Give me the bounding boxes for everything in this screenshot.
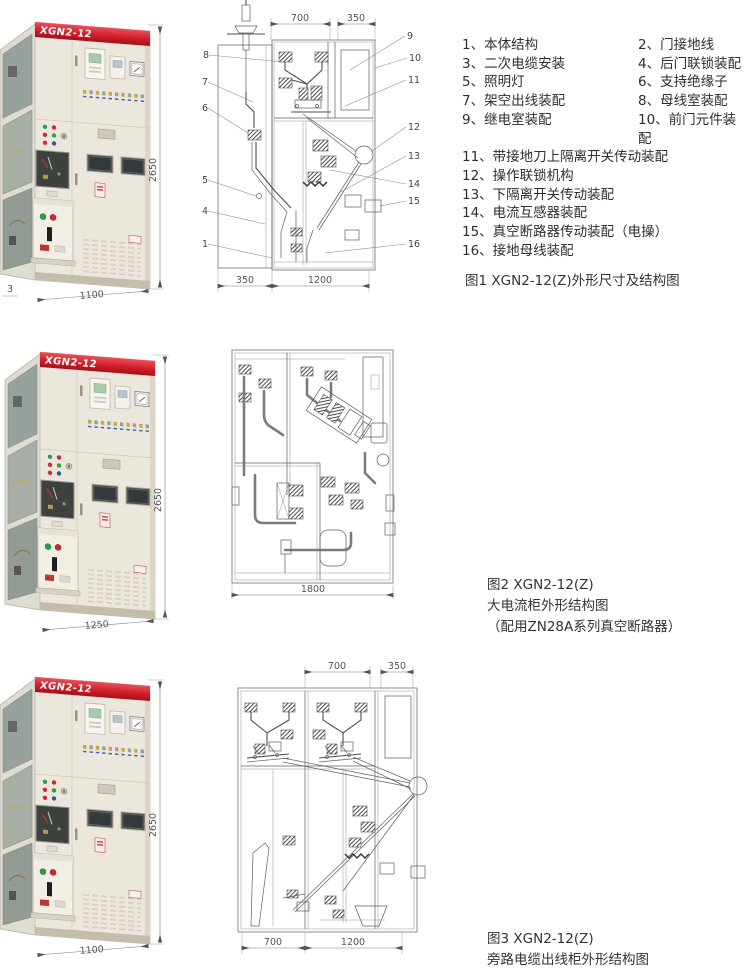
svg-text:12: 12 (408, 122, 420, 133)
dim-350b: 350 (236, 275, 254, 286)
door-handle (75, 173, 78, 185)
svg-text:1: 1 (202, 239, 208, 250)
busbar-bay-1 (245, 703, 295, 762)
part-item: 10、前门元件装配 (638, 111, 746, 148)
width-dim-label: 1100 (79, 289, 104, 302)
ct-and-mechanism (251, 806, 425, 926)
side-panel (0, 679, 35, 935)
busbar-room (279, 52, 331, 112)
dim-350: 350 (388, 661, 406, 672)
drawing-fig2: 1800 (225, 345, 405, 607)
mechanism-box (31, 198, 75, 266)
rear-cable-path (246, 92, 291, 258)
width-dimension: 1250 (43, 619, 153, 632)
top-dimensions: 700 350 (271, 13, 375, 40)
open-button (50, 214, 56, 220)
svg-text:9: 9 (407, 31, 413, 42)
caption-line: 图2 XGN2-12(Z) (487, 575, 681, 596)
overhead-bushing (227, 0, 265, 92)
door-handle (75, 55, 78, 66)
dim-700: 700 (328, 661, 346, 672)
part-item: 14、电流互感器装配 (462, 204, 746, 223)
inspection-window (41, 480, 74, 519)
width-dim-label: 1250 (84, 619, 109, 632)
close-button (40, 868, 46, 874)
height-dim-label: 2650 (153, 488, 164, 512)
inspection-window (36, 150, 69, 189)
svg-text:16: 16 (408, 239, 420, 250)
bottom-dimensions: 700 1200 (242, 932, 402, 954)
part-item: 15、真空断路器传动装配（电操） (462, 223, 746, 242)
busbar-bay-2 (313, 703, 367, 762)
open-button (50, 869, 56, 875)
cable-runs (239, 365, 375, 550)
width-dim-label: 1100 (79, 944, 104, 957)
operating-linkage (283, 757, 427, 912)
front-panel: XGN2-12 (31, 22, 150, 289)
width-dimension: 1100 (38, 944, 148, 957)
part-item: 11、带接地刀上隔离开关传动装配 (462, 148, 746, 167)
caption-line: 大电流柜外形结构图 (487, 596, 681, 617)
mechanism-box (36, 528, 80, 596)
svg-text:4: 4 (202, 206, 208, 217)
svg-text:10: 10 (409, 53, 421, 64)
dim-700: 700 (291, 13, 309, 24)
dim-1800: 1800 (301, 584, 325, 595)
caption-fig2: 图2 XGN2-12(Z) 大电流柜外形结构图 （配用ZN28A系列真空断路器） (487, 575, 681, 638)
part-item: 6、支持绝缘子 (638, 73, 746, 92)
part-item: 5、照明灯 (462, 73, 638, 92)
cabinet-outline (232, 350, 395, 583)
bottom-dimensions: 350 1200 (218, 268, 369, 292)
ct-compartment (274, 140, 381, 262)
svg-text:14: 14 (408, 179, 420, 190)
side-callout-label: 3 (7, 284, 13, 295)
vacuum-breaker-assembly (306, 387, 373, 444)
svg-text:5: 5 (202, 175, 208, 186)
door-handle (80, 385, 83, 396)
side-panel (0, 24, 35, 280)
door-handle (75, 710, 78, 721)
svg-text:7: 7 (202, 77, 208, 88)
height-dim-label: 2650 (148, 813, 159, 837)
cabinet-outline (238, 688, 417, 932)
side-panel (5, 354, 40, 610)
dim-1200: 1200 (308, 275, 332, 286)
inspection-window (36, 805, 69, 844)
part-item: 2、门接地线 (638, 36, 746, 55)
close-button (40, 213, 46, 219)
part-item: 16、接地母线装配 (462, 242, 746, 261)
part-item: 13、下隔离开关传动装配 (462, 186, 746, 205)
part-item: 8、母线室装配 (638, 92, 746, 111)
part-item: 3、二次电缆安装 (462, 55, 638, 74)
part-item: 9、继电室装配 (462, 111, 638, 148)
bottom-dimension: 1800 (232, 584, 393, 599)
drawing-fig1: 700 350 350 1200 8 7 6 5 4 1 9 10 11 12 … (195, 0, 470, 300)
svg-text:13: 13 (408, 151, 420, 162)
open-button (55, 544, 61, 550)
dim-1200: 1200 (341, 937, 365, 948)
door-handle (75, 828, 78, 840)
side-callout: 3 (2, 284, 18, 296)
svg-text:11: 11 (408, 75, 420, 86)
callouts-left: 8 7 6 5 4 1 (202, 50, 283, 258)
drawing-fig3: 700 350 700 1200 (225, 658, 475, 963)
svg-text:8: 8 (203, 50, 209, 61)
caption-line: 旁路电缆出线柜外形结构图 (487, 950, 649, 971)
front-panel: XGN2-12 (36, 352, 155, 619)
svg-text:6: 6 (202, 103, 208, 114)
part-item: 4、后门联锁装配 (638, 55, 746, 74)
parts-list: 1、本体结构 2、门接地线 3、二次电缆安装 4、后门联锁装配 5、照明灯 6、… (462, 36, 746, 260)
top-dimensions: 700 350 (305, 661, 413, 688)
part-item: 7、架空出线装配 (462, 92, 638, 111)
door-handle (80, 503, 83, 515)
caption-fig1: 图1 XGN2-12(Z)外形尺寸及结构图 (465, 269, 680, 289)
caption-line: （配用ZN28A系列真空断路器） (487, 617, 681, 638)
dim-700b: 700 (264, 937, 282, 948)
dim-350: 350 (347, 13, 365, 24)
svg-text:15: 15 (408, 196, 420, 207)
cabinet-photo-fig2: XGN2-12 (0, 338, 180, 638)
cabinet-photo-fig3: XGN2-12 (0, 663, 170, 963)
catalog-page: XGN2-12 (0, 0, 748, 974)
part-item: 1、本体结构 (462, 36, 638, 55)
cabinet-photo-fig1: XGN2-12 (0, 8, 170, 308)
height-dim-label: 2650 (148, 158, 159, 182)
close-button (45, 543, 51, 549)
width-dimension: 1100 (38, 289, 148, 302)
caption-fig3: 图3 XGN2-12(Z) 旁路电缆出线柜外形结构图 (487, 929, 649, 971)
front-panel: XGN2-12 (31, 677, 150, 944)
mechanism-box (31, 853, 75, 921)
part-item: 12、操作联锁机构 (462, 167, 746, 186)
caption-line: 图3 XGN2-12(Z) (487, 929, 649, 950)
